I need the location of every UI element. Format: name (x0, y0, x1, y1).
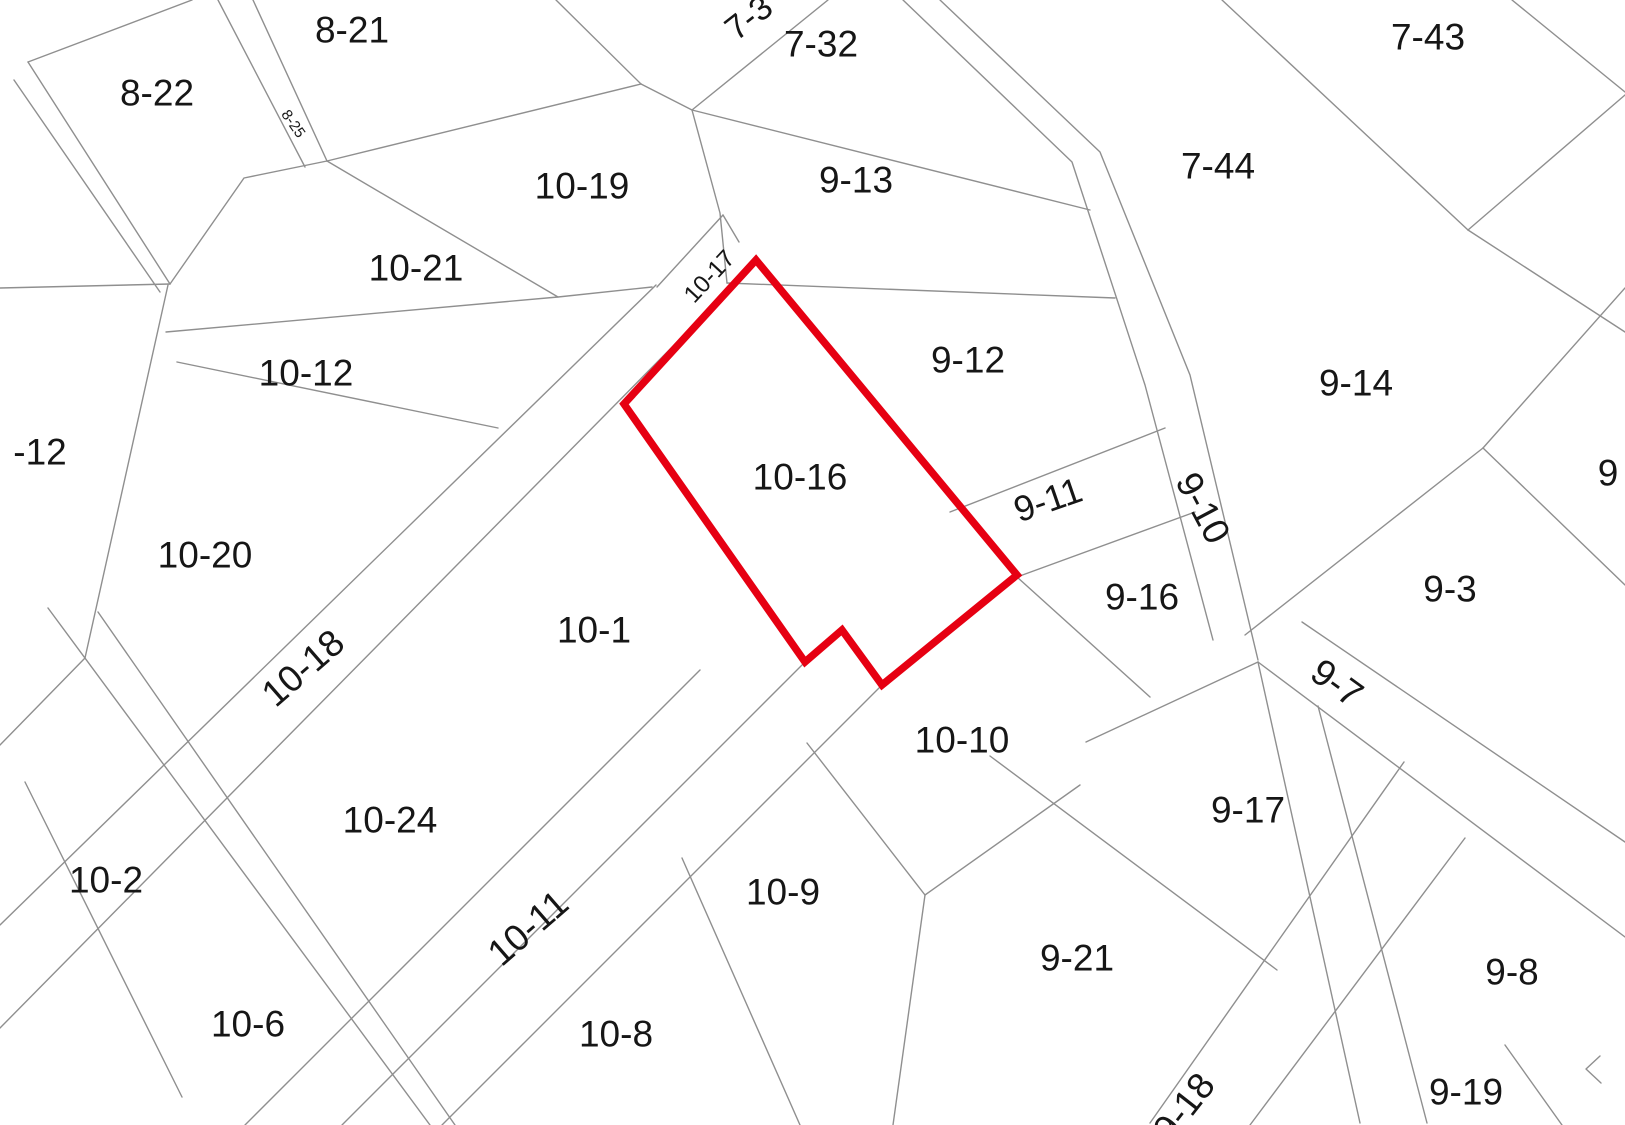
parcel-label-9-19: 9-19 (1429, 1074, 1503, 1111)
parcel-boundary-line (170, 161, 327, 284)
parcel-label-9-16: 9-16 (1105, 579, 1179, 616)
parcel-label-9-14: 9-14 (1319, 365, 1393, 402)
parcel-label-9-17: 9-17 (1211, 792, 1285, 829)
parcel-boundary-line (1086, 662, 1258, 742)
parcel-boundary-line (1586, 1056, 1601, 1083)
parcel-boundary-line (1512, 0, 1625, 92)
parcel-label-10-20: 10-20 (158, 537, 253, 574)
parcel-boundary-line (85, 285, 168, 658)
parcel-label-8-21: 8-21 (315, 12, 389, 49)
parcel-label-10-9: 10-9 (746, 874, 820, 911)
parcel-label-9-8: 9-8 (1485, 954, 1538, 991)
parcel-boundary-line (1318, 706, 1427, 1123)
parcel-label-10-16: 10-16 (753, 459, 848, 496)
parcel-boundary-line (327, 84, 641, 161)
parcel-boundary-line (342, 662, 805, 1125)
parcel-label-10-19: 10-19 (535, 168, 630, 205)
parcel-label-10-1: 10-1 (557, 612, 631, 649)
parcel-boundary-line (0, 658, 85, 745)
parcel-boundary-line (641, 84, 692, 110)
parcel-boundary-line (28, 0, 192, 62)
parcel-boundary-line (925, 785, 1080, 895)
parcel-label-10-12: 10-12 (259, 355, 354, 392)
parcel-label-7-44: 7-44 (1181, 148, 1255, 185)
parcel-label-10-2: 10-2 (69, 862, 143, 899)
parcel-boundary-line (556, 0, 641, 84)
parcel-label--12: -12 (13, 434, 66, 471)
parcel-boundary-line (1505, 1045, 1562, 1125)
parcel-boundary-line (25, 782, 182, 1097)
cadastral-map[interactable]: 8-228-218-257-37-327-4310-199-137-4410-2… (0, 0, 1625, 1125)
parcel-boundary-line (940, 0, 1258, 660)
parcel-label-9-3: 9-3 (1423, 571, 1476, 608)
parcel-boundary-line (807, 743, 925, 1125)
parcel-boundary-line (1468, 230, 1625, 332)
parcel-boundary-line (990, 756, 1277, 970)
parcel-label-10-21: 10-21 (369, 250, 464, 287)
parcel-label-9-21: 9-21 (1040, 940, 1114, 977)
parcel-label-9-13: 9-13 (819, 162, 893, 199)
parcel-boundary-line (1258, 662, 1625, 937)
parcel-boundary-line (723, 215, 739, 242)
parcel-label-10-24: 10-24 (343, 802, 438, 839)
parcel-label-10-10: 10-10 (915, 722, 1010, 759)
parcel-label-7-43: 7-43 (1391, 19, 1465, 56)
parcel-boundary-line (1468, 95, 1625, 230)
parcel-label-9: 9 (1598, 455, 1619, 492)
parcel-boundary-line (903, 0, 1213, 640)
parcel-boundary-line (1483, 288, 1625, 448)
parcel-label-9-12: 9-12 (931, 342, 1005, 379)
parcel-boundary-line (245, 670, 700, 1125)
parcel-boundary-line (0, 262, 756, 1028)
parcel-boundary-line (166, 287, 652, 332)
parcel-boundary-line (0, 284, 170, 288)
parcel-label-10-8: 10-8 (579, 1016, 653, 1053)
parcel-label-10-6: 10-6 (211, 1006, 285, 1043)
parcel-boundary-line (1258, 662, 1360, 1123)
parcel-label-8-22: 8-22 (120, 75, 194, 112)
parcel-label-7-32: 7-32 (784, 26, 858, 63)
